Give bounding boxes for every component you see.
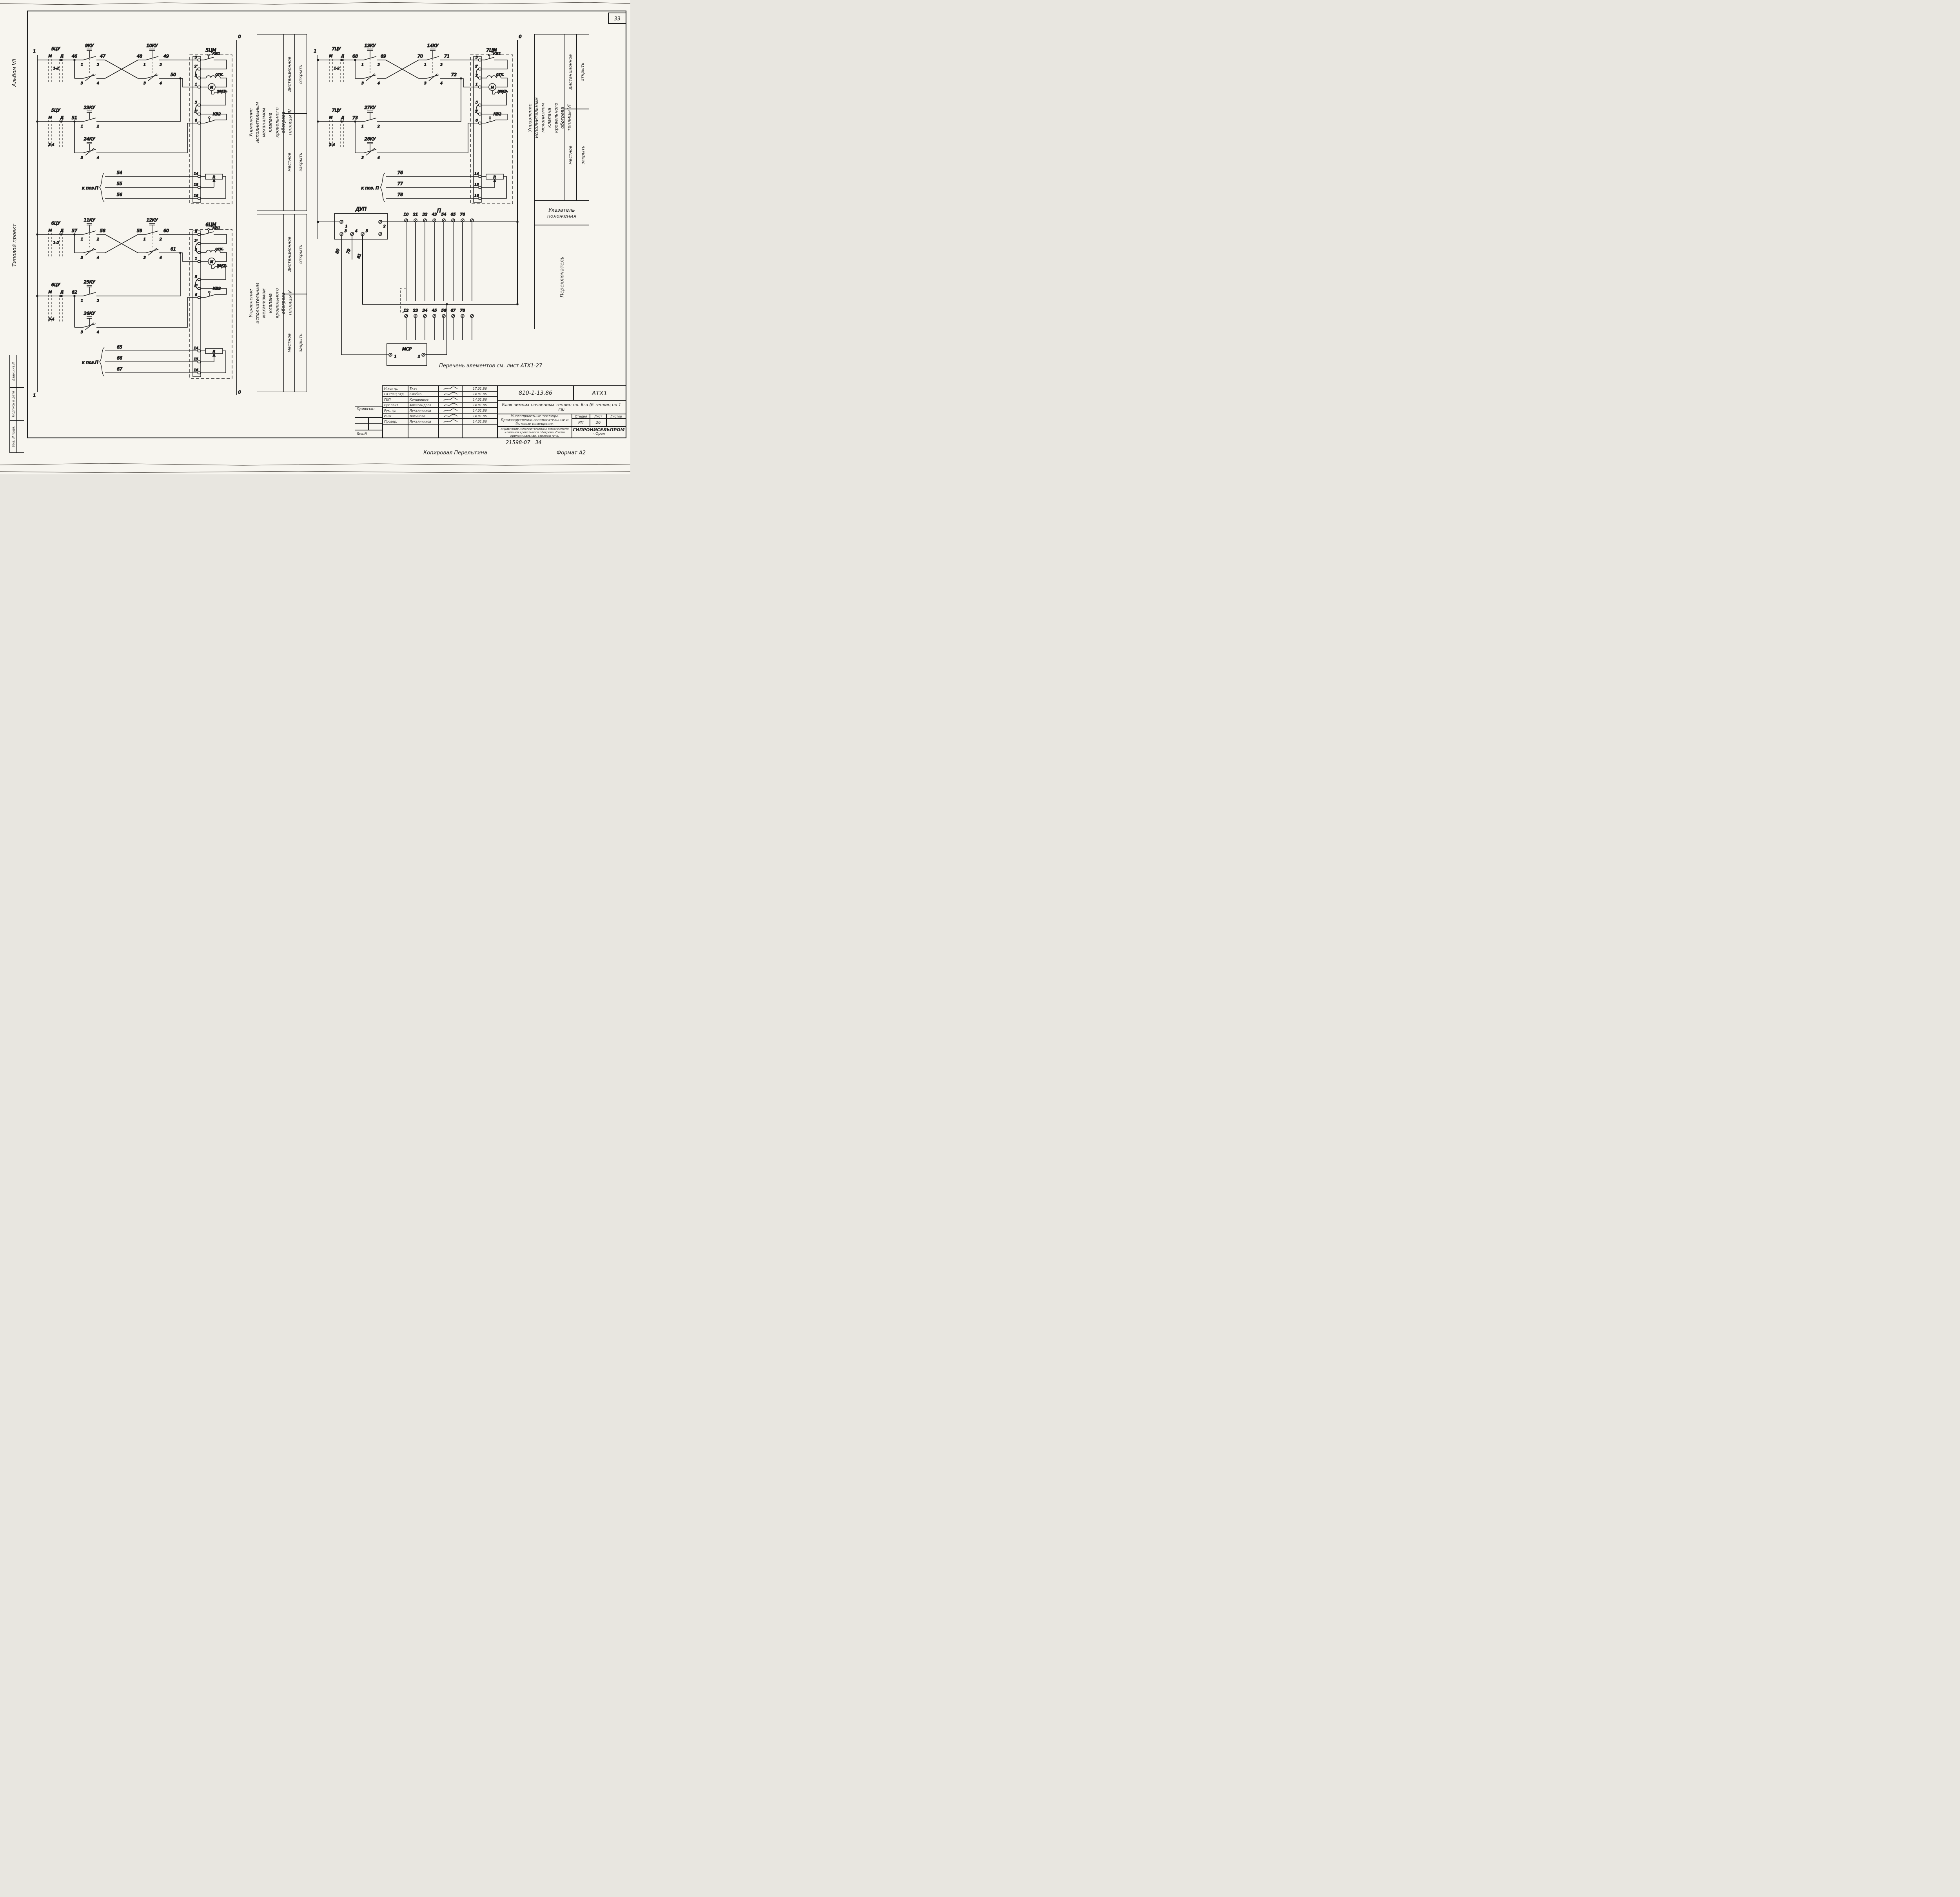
bus-label: 0 (238, 34, 241, 39)
contact-label: Д (60, 290, 64, 294)
mode-label: местное (568, 145, 573, 164)
wire-label: 68 (352, 54, 358, 59)
contact-label: М (49, 290, 52, 294)
bus-label: 1 (314, 49, 317, 54)
terminal-label: 2 (475, 74, 478, 78)
bus-label: 0 (519, 34, 522, 39)
wire-label: 61 (171, 247, 176, 252)
pin-label: 4 (97, 256, 99, 260)
wire-label: 73 (352, 115, 358, 120)
terminal-label: 5' (194, 284, 198, 288)
bus-label: 1 (33, 393, 36, 398)
kpos-label: к поз. П (361, 185, 379, 191)
terminal-label: 5 (475, 101, 478, 105)
object-name: Блок зимних почвенных теплиц пл. 6га (6 … (497, 400, 626, 414)
stage-value: РП (572, 418, 590, 427)
contact-range: 1-2 (53, 67, 59, 71)
contact-label: М (49, 116, 52, 120)
terminal-label: 5 (366, 229, 368, 233)
device-label: 25КУ (84, 280, 96, 285)
bus-lines-right (318, 40, 517, 304)
pin-label: 2 (160, 238, 162, 241)
motor-label: М (210, 86, 213, 90)
device-label: отк. (215, 73, 223, 77)
contact-label: Д (60, 54, 64, 58)
device-label: 26КУ (84, 311, 96, 316)
wire-label: 55 (117, 181, 122, 186)
terminal-label: 76 (460, 212, 465, 217)
wire-label: 67 (117, 367, 122, 372)
organization: ГИПРОНИСЕЛЬПРОМ г.Орел (572, 426, 626, 438)
bus-lines-left (37, 40, 237, 395)
footer-format: Формат А2 (557, 450, 586, 456)
mode-label: дистанционное (568, 54, 573, 89)
terminal-label: 45 (432, 309, 437, 313)
wire-label: 49 (163, 54, 169, 59)
terminal-label: 1 (394, 355, 397, 359)
device-label: КВ2 (213, 112, 221, 116)
contact-range: 3-4 (49, 318, 54, 321)
terminal-label: 6 (195, 119, 197, 123)
contact-range: 3-4 (329, 143, 335, 147)
contact-range: 1-2 (334, 67, 340, 71)
position-indicator-box: Указатель положения (534, 200, 589, 225)
elements-note: Перечень элементов см. лист АТХ1-27 (439, 363, 596, 369)
drawing-sheet: { "page": {"sheet_corner":"33","footer_d… (0, 0, 630, 474)
terminal-label: 15 (194, 358, 198, 361)
pin-label: 1 (424, 63, 426, 67)
terminal-label: 32 (423, 212, 428, 217)
pin-label: 2 (97, 125, 99, 129)
pin-label: 4 (97, 330, 99, 334)
terminal-label: 56 (441, 309, 446, 313)
pin-label: 2 (377, 63, 380, 67)
pin-label: 3 (81, 330, 83, 334)
device-label: КВ1 (212, 226, 220, 231)
dup-block (317, 214, 518, 355)
p-switch-block (401, 219, 474, 340)
wire-label: 60 (163, 228, 169, 233)
bus-label: 1 (33, 49, 36, 54)
pin-label: 3 (81, 156, 83, 160)
motor-label: М (491, 86, 494, 90)
pin-label: 1 (143, 63, 146, 67)
terminal-label: 15 (194, 183, 198, 187)
wire-label: 71 (444, 54, 450, 59)
pin-label: 4 (377, 82, 380, 85)
kpos-label: к поз.П (82, 360, 98, 365)
pin-label: 3 (81, 82, 83, 85)
terminal-label: 5 (195, 275, 197, 279)
terminal-label: 14 (474, 172, 479, 176)
terminal-label: 12 (404, 309, 409, 313)
wire-label: 62 (72, 290, 77, 295)
pin-label: 4 (377, 156, 380, 160)
labels-dup-p-msr: ДУП 1 2 3 4 5 80 79 81 П 10 21 32 43 54 … (335, 207, 465, 359)
wire-label: 78 (397, 192, 403, 197)
mode-label: местное (287, 333, 292, 352)
stamp-label: Подпись и дата (12, 391, 15, 417)
mode-label: закрыть (298, 153, 303, 172)
position-indicator-line: Указатель (548, 207, 575, 213)
wire-label: 56 (117, 192, 122, 197)
device-label: 7ЦУ (332, 108, 341, 113)
contact-range: 3-4 (49, 143, 54, 147)
device-label: 5ЦУ (51, 108, 61, 113)
doc-code: АТХ1 (573, 385, 626, 401)
mode-label: дистанционное (287, 236, 292, 272)
kpos-label: к поз.П (82, 185, 98, 191)
wire-label: 54 (117, 170, 122, 175)
wire-label: 65 (117, 345, 122, 350)
device-label: 14КУ (427, 43, 439, 48)
pin-label: 4 (160, 82, 162, 85)
terminal-label: 1 (345, 225, 348, 229)
terminal-label: 16 (194, 369, 198, 372)
terminal-label: 67 (451, 309, 456, 313)
device-label: R (213, 350, 216, 354)
contact-label: М (49, 229, 52, 233)
terminal-label: 6 (475, 119, 478, 123)
terminal-label: 2 (418, 355, 420, 359)
stamp-label: Инв. N подл. (12, 426, 15, 447)
device-label: закр. (217, 89, 227, 93)
block-title: МСР (402, 347, 412, 352)
footer-doc-number: 21598-07 34 (506, 440, 542, 446)
device-label: 28КУ (365, 136, 376, 142)
pin-label: 1 (143, 238, 146, 241)
contact-label: Д (60, 229, 64, 233)
footer-copied-by: Копировал Перелыгина (423, 450, 487, 456)
device-label: КВ1 (212, 52, 220, 56)
mode-label: открыть (580, 62, 585, 81)
pin-label: 1 (361, 125, 364, 129)
pin-label: 3 (143, 256, 146, 260)
terminal-label: 23 (413, 309, 418, 313)
pin-label: 3 (81, 256, 83, 260)
device-label: 6ЦУ (51, 221, 61, 226)
wire-label: 76 (397, 170, 403, 175)
mode-label: открыть (298, 245, 303, 263)
device-label: отк. (215, 247, 223, 251)
wire-label: 48 (137, 54, 142, 59)
wire-label: 69 (381, 54, 386, 59)
sheet-value: 26 (590, 418, 607, 427)
pin-label: 4 (97, 82, 99, 85)
device-label: 11КУ (84, 218, 96, 223)
motor-label: М (210, 260, 213, 264)
pin-label: 2 (97, 299, 99, 303)
device-label: 7ЦУ (332, 46, 341, 51)
terminal-label: 2' (194, 65, 198, 69)
terminal-label: 65 (451, 212, 456, 217)
terminal-label: 43 (432, 212, 437, 217)
terminal-label: 34 (423, 309, 428, 313)
device-label: 12КУ (147, 218, 158, 223)
wire-label: 66 (117, 356, 122, 361)
device-label: 5ЦУ (51, 46, 61, 51)
sheet-content: Управление исполнительными механизмами к… (497, 426, 572, 438)
device-label: 23КУ (84, 105, 96, 110)
pin-label: 3 (143, 82, 146, 85)
pin-label: 2 (440, 63, 443, 67)
mode-label: дистанционное (287, 56, 292, 92)
terminal-label: 16 (474, 194, 479, 198)
wire-label: 58 (100, 228, 105, 233)
block-title: П (437, 208, 441, 214)
terminal-label: 2 (195, 248, 197, 252)
contact-label: М (329, 116, 333, 120)
terminal-label: 21 (413, 212, 418, 217)
terminal-label: 5 (195, 101, 197, 105)
inv-cell: Инв.N (355, 430, 383, 438)
contact-label: М (329, 54, 333, 58)
device-label: закр. (497, 89, 508, 93)
sheets-value (606, 418, 626, 427)
wire-label: 77 (397, 181, 403, 186)
device-label: КВ1 (493, 52, 501, 56)
wire-label: 47 (100, 54, 105, 59)
device-label: 10КУ (147, 43, 158, 48)
terminal-label: 16 (194, 194, 198, 198)
block-title: ДУП (355, 207, 367, 212)
pin-label: 2 (97, 63, 99, 67)
wire-label: 50 (171, 72, 176, 77)
device-label: отк. (496, 73, 504, 77)
wire-label: 46 (72, 54, 77, 59)
mode-label: местное (287, 152, 292, 171)
contact-label: Д (341, 54, 344, 58)
wire-label: 72 (451, 72, 457, 77)
pin-label: 1 (81, 63, 83, 67)
terminal-label: 1 (195, 257, 197, 261)
pin-label: 3 (361, 156, 364, 160)
pin-label: 3 (361, 82, 364, 85)
pin-label: 3 (424, 82, 426, 85)
pin-label: 1 (81, 125, 83, 129)
margin-project-type: Типовой проект (3, 188, 27, 302)
wire-label: 70 (417, 54, 423, 59)
wire-label: 57 (72, 228, 77, 233)
terminal-label: 78 (460, 309, 465, 313)
terminal-label: 2' (475, 65, 478, 69)
device-label: 9КУ (85, 43, 94, 48)
device-label: закр. (217, 263, 227, 268)
device-label: R (494, 175, 496, 180)
terminal-label: 54 (441, 212, 446, 217)
terminal-label: 3 (345, 229, 347, 233)
device-label: R (213, 175, 216, 180)
pin-label: 1 (81, 299, 83, 303)
terminal-label: 6 (195, 293, 197, 297)
contact-label: Д (60, 116, 64, 120)
pin-label: 1 (81, 238, 83, 241)
terminal-label: 1 (475, 83, 478, 87)
terminal-label: 3 (195, 230, 197, 234)
device-label: 24КУ (84, 136, 96, 142)
position-indicator-line: положения (547, 213, 576, 219)
mode-label: закрыть (298, 334, 303, 352)
terminal-label: 3 (195, 56, 197, 60)
mode-label: закрыть (580, 145, 585, 164)
device-label: 27КУ (365, 105, 376, 110)
wire-label: 59 (137, 228, 142, 233)
attached-cell: Привязан (355, 406, 383, 418)
contact-label: М (49, 54, 52, 58)
pin-label: 4 (160, 256, 162, 260)
pin-label: 4 (97, 156, 99, 160)
terminal-label: 15 (474, 183, 479, 187)
pin-label: 2 (97, 238, 99, 241)
terminal-label: 10 (404, 212, 409, 217)
contact-range: 1-2 (53, 241, 59, 245)
contact-label: Д (341, 116, 344, 120)
terminal-label: 2' (194, 239, 198, 243)
wire-label: 80 (335, 248, 341, 254)
terminal-label: 14 (194, 347, 198, 350)
terminal-label: 5' (194, 110, 198, 114)
pin-label: 4 (440, 82, 443, 85)
wire-label: 81 (356, 253, 362, 259)
stamp-label: Взам.инв.N (12, 362, 15, 381)
project-name: Многопролетные теплицы. Производственно-… (497, 414, 572, 427)
doc-number: 810-1-13.86 (497, 385, 574, 401)
pin-label: 2 (377, 125, 380, 129)
device-label: КВ2 (494, 112, 501, 116)
terminal-label: 3 (475, 56, 478, 60)
selector-switch-box: Переключатель (534, 225, 589, 329)
device-label: КВ2 (213, 287, 221, 291)
sheet-number: 33 (608, 14, 626, 24)
wire-label: 51 (72, 115, 77, 120)
terminal-label: 2 (195, 74, 197, 78)
terminal-label: 5' (475, 110, 478, 114)
device-label: 6ЦУ (51, 282, 61, 287)
terminal-label: 2 (383, 225, 386, 229)
pin-label: 2 (160, 63, 162, 67)
terminal-label: 14 (194, 172, 198, 176)
mode-label: открыть (298, 65, 303, 84)
wire-label: 79 (346, 248, 352, 254)
device-label: 13КУ (365, 43, 376, 48)
bus-label: 0 (238, 390, 241, 395)
terminal-label: 1 (195, 83, 197, 87)
pin-label: 1 (361, 63, 364, 67)
margin-album: Альбом VII (3, 35, 27, 110)
terminal-label: 4 (355, 229, 358, 233)
selector-switch-label: Переключатель (559, 256, 565, 297)
